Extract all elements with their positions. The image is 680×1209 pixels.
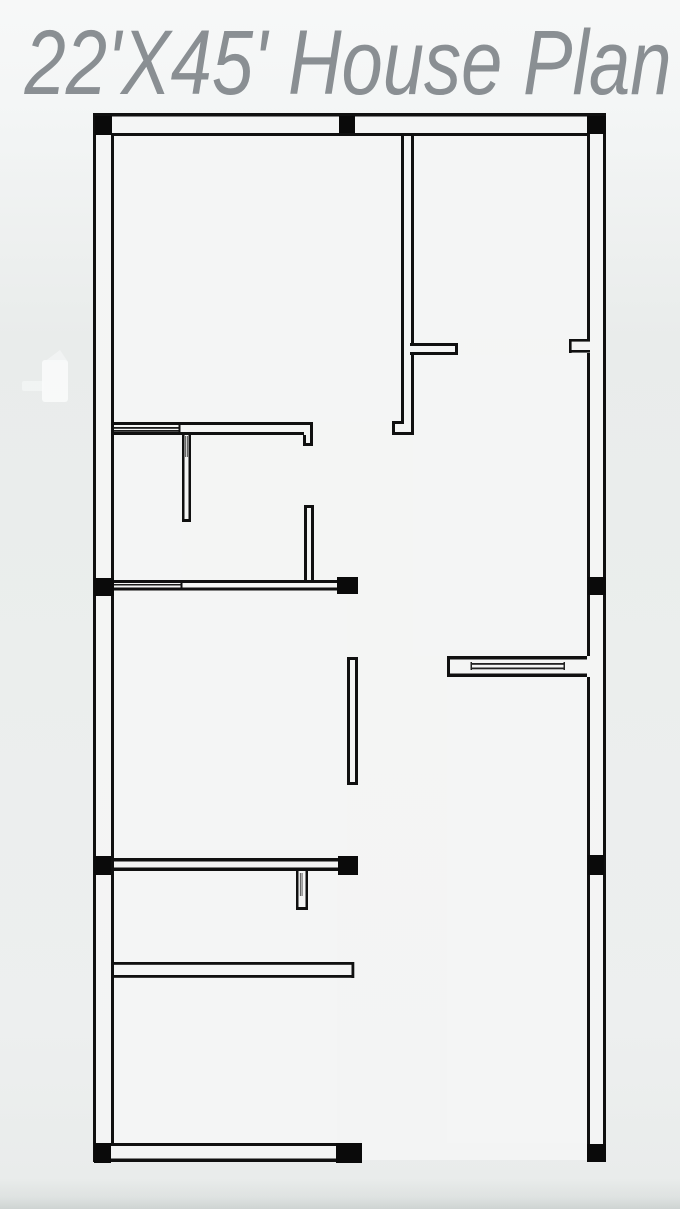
svg-text:22'X45' House Plan: 22'X45' House Plan — [24, 12, 672, 114]
